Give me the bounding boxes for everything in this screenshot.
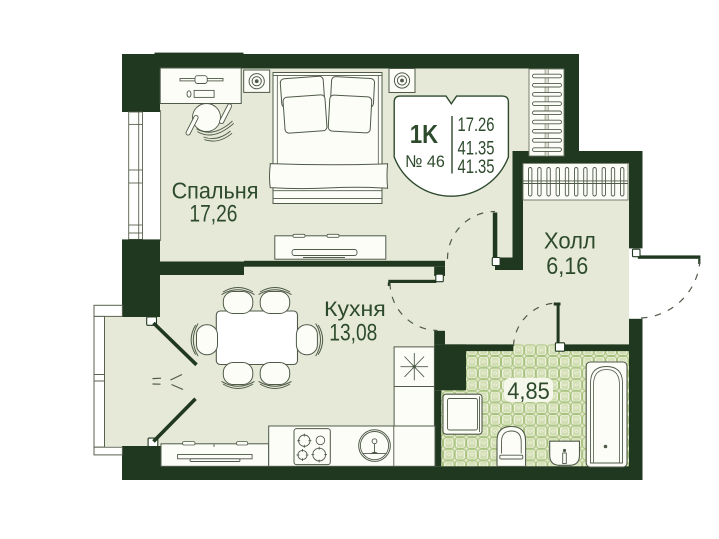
svg-text:17.26: 17.26 [457,114,494,135]
svg-text:Холл: Холл [544,228,596,254]
svg-text:1K: 1K [410,120,439,149]
svg-text:№ 46: № 46 [405,152,445,171]
svg-text:Кухня: Кухня [324,297,386,321]
svg-text:17,26: 17,26 [189,199,237,227]
svg-text:13,08: 13,08 [329,318,377,346]
svg-text:4,85: 4,85 [507,377,550,404]
svg-text:41.35: 41.35 [457,156,494,177]
svg-text:6,16: 6,16 [546,252,588,279]
